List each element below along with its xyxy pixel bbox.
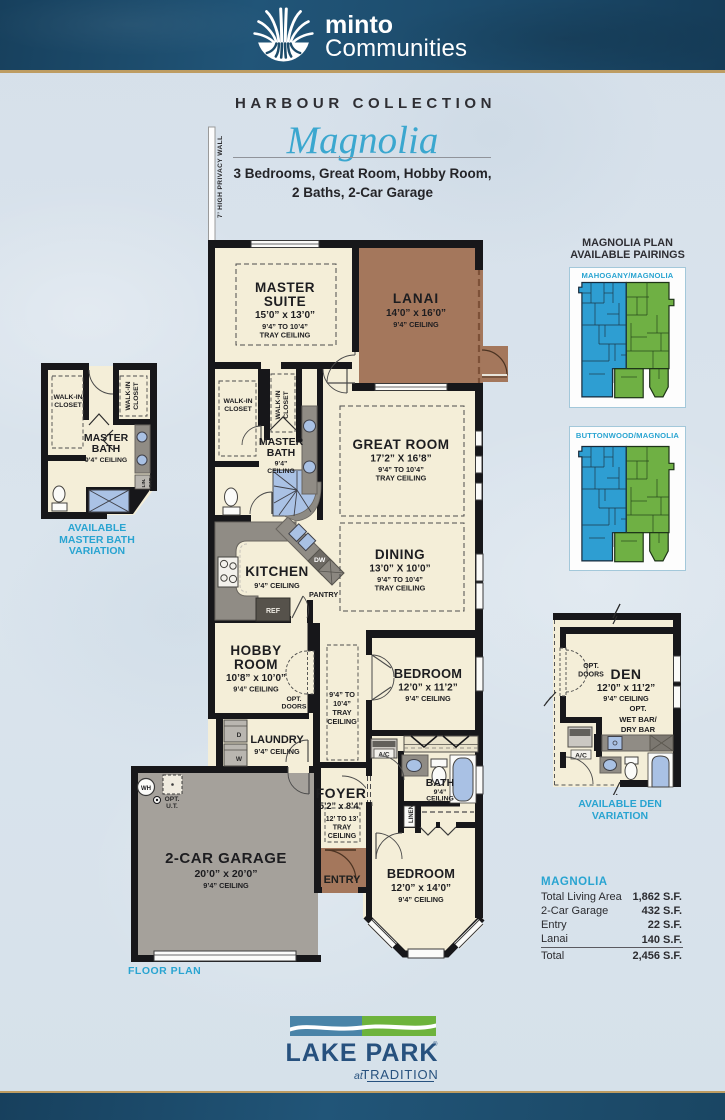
svg-text:BEDROOM: BEDROOM [387,866,455,881]
svg-text:TRAY: TRAY [332,708,351,717]
svg-text:DRY BAR: DRY BAR [621,725,656,734]
svg-text:DW: DW [314,557,326,564]
svg-text:CEILING: CEILING [327,717,357,726]
svg-text:9’4” CEILING: 9’4” CEILING [393,320,439,329]
svg-text:BEDROOM: BEDROOM [394,666,462,681]
svg-text:10’8” x 10’0”: 10’8” x 10’0” [226,673,286,684]
svg-text:ENTRY: ENTRY [324,874,362,886]
svg-text:BATH: BATH [92,443,120,455]
svg-text:20’0” x 20’0”: 20’0” x 20’0” [194,868,257,880]
svg-text:12’0” x 14’0”: 12’0” x 14’0” [391,883,451,894]
svg-text:WALK-IN: WALK-IN [53,394,82,401]
svg-text:17’2” X 16’8”: 17’2” X 16’8” [370,454,431,465]
svg-text:9’4” TO: 9’4” TO [329,690,355,699]
svg-text:9’4”: 9’4” [275,461,288,468]
svg-text:Communities: Communities [325,35,467,62]
svg-text:CAB.: CAB. [148,476,153,487]
svg-text:W: W [236,756,243,763]
svg-text:LAUNDRY: LAUNDRY [250,734,304,746]
svg-text:DINING: DINING [375,547,425,562]
svg-text:GREAT ROOM: GREAT ROOM [353,437,450,452]
svg-text:CEILING: CEILING [426,796,454,803]
svg-text:9’4” CEILING: 9’4” CEILING [603,694,649,703]
svg-text:HOBBY: HOBBY [230,643,281,658]
svg-text:WALK-IN: WALK-IN [125,381,132,410]
svg-text:REF: REF [266,608,281,615]
svg-text:DOORS: DOORS [282,704,307,711]
svg-text:PANTRY: PANTRY [309,590,338,599]
svg-text:9’4” CEILING: 9’4” CEILING [398,895,444,904]
svg-text:®: ® [433,1041,438,1048]
svg-text:9’4” CEILING: 9’4” CEILING [254,581,300,590]
svg-text:CEILING: CEILING [328,833,357,840]
svg-text:10’4”: 10’4” [333,699,351,708]
svg-text:CLOSET: CLOSET [283,390,290,418]
svg-text:WALK-IN: WALK-IN [275,390,282,419]
svg-text:OPT.: OPT. [165,796,180,803]
svg-text:TRAY CEILING: TRAY CEILING [375,584,426,593]
svg-text:CLOSET: CLOSET [224,406,252,413]
svg-text:CLOSET: CLOSET [133,381,140,409]
svg-text:7’ HIGH PRIVACY WALL: 7’ HIGH PRIVACY WALL [217,136,224,219]
svg-text:LAKE PARK: LAKE PARK [286,1039,439,1067]
svg-text:CEILING: CEILING [267,468,295,475]
svg-text:DOORS: DOORS [578,672,604,679]
svg-text:U.T.: U.T. [166,803,178,810]
svg-text:9’4” CEILING: 9’4” CEILING [203,881,249,890]
svg-text:TRAY CEILING: TRAY CEILING [260,331,311,340]
svg-text:9’4” CEILING: 9’4” CEILING [233,685,279,694]
svg-text:CLOSET: CLOSET [54,402,82,409]
svg-text:OPT.: OPT. [583,663,599,670]
svg-text:12’0” x 11’2”: 12’0” x 11’2” [597,683,655,694]
svg-text:WALK-IN: WALK-IN [223,398,252,405]
svg-text:9’4” CEILING: 9’4” CEILING [85,457,127,464]
svg-text:D: D [237,732,242,739]
svg-text:TRADITION: TRADITION [361,1067,438,1082]
svg-text:WH: WH [141,786,151,792]
svg-text:BATH: BATH [267,447,295,459]
svg-text:MASTER: MASTER [255,280,315,295]
svg-text:LIN.: LIN. [141,479,146,488]
svg-text:12’ TO 13’: 12’ TO 13’ [326,816,359,823]
svg-text:WET BAR/: WET BAR/ [619,715,657,724]
svg-text:FOYER: FOYER [316,785,367,801]
svg-text:LANAI: LANAI [393,291,439,306]
svg-text:LINEN: LINEN [409,805,415,823]
svg-text:BATH: BATH [426,777,454,789]
svg-text:5’2” x 8’4”: 5’2” x 8’4” [319,801,363,811]
svg-text:13’0” X 10’0”: 13’0” X 10’0” [369,564,430,575]
svg-text:9’4” CEILING: 9’4” CEILING [405,694,451,703]
svg-text:9’4” CEILING: 9’4” CEILING [254,747,300,756]
svg-text:TRAY: TRAY [333,825,352,832]
svg-text:14’0” x 16’0”: 14’0” x 16’0” [386,308,446,319]
svg-text:12’0” x 11’2”: 12’0” x 11’2” [398,683,458,694]
svg-text:2-CAR GARAGE: 2-CAR GARAGE [165,850,287,867]
svg-text:ROOM: ROOM [234,657,278,672]
svg-text:OPT.: OPT. [630,704,647,713]
svg-text:KITCHEN: KITCHEN [245,564,309,579]
svg-text:DEN: DEN [610,666,641,682]
svg-text:SUITE: SUITE [264,294,306,309]
svg-text:TRAY CEILING: TRAY CEILING [376,474,427,483]
svg-text:OPT.: OPT. [286,696,301,703]
svg-text:15’0” x 13’0”: 15’0” x 13’0” [255,310,315,321]
